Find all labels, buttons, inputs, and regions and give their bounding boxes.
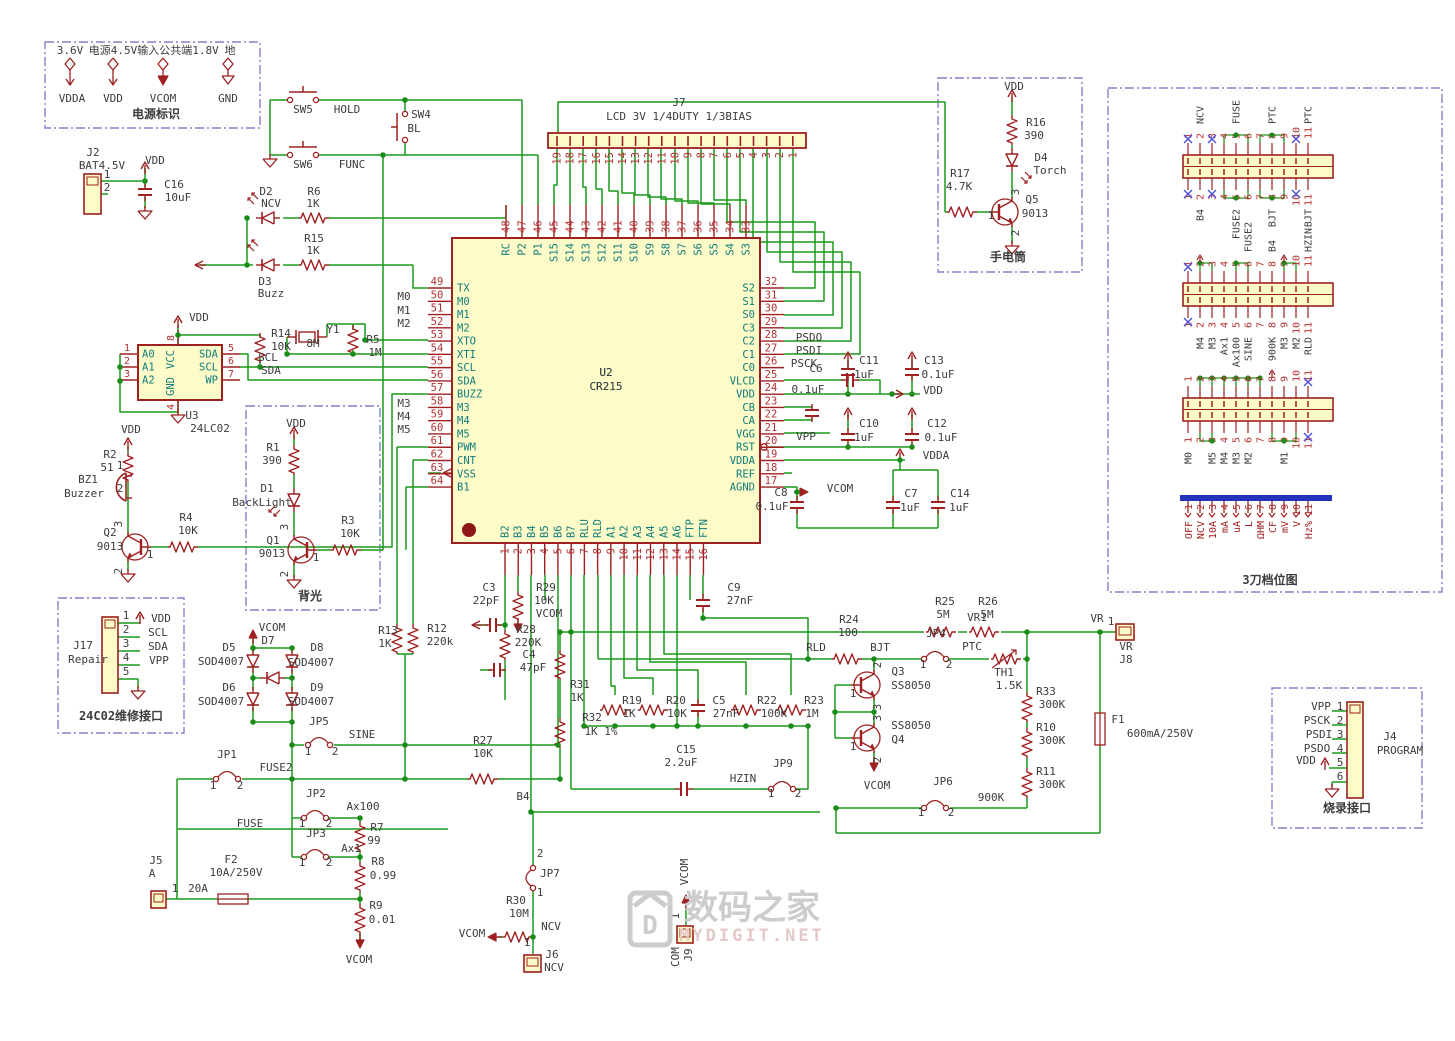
position-number: 2 <box>1196 504 1207 510</box>
circle <box>287 97 292 102</box>
pin-name: VGG <box>736 428 755 440</box>
label-1: 1 <box>123 609 130 622</box>
pin-number: 40 <box>629 220 641 233</box>
gnd-arrow-icon <box>195 261 206 269</box>
pin-number: 3 <box>761 152 773 158</box>
pin-number: 5 <box>1232 437 1243 443</box>
label-0-99: 0.99 <box>370 869 397 882</box>
pin-name: WP <box>205 375 218 387</box>
zigzag <box>355 862 365 892</box>
pin-number: 16 <box>698 548 710 561</box>
connector-icon <box>151 891 166 908</box>
junction-dot <box>1233 195 1238 200</box>
capacitor-icon <box>905 363 919 381</box>
pin-number: 9 <box>1280 194 1291 200</box>
label-2: 2 <box>1337 714 1344 727</box>
rotary-legend: 1OFF2NCV310A4mA5uA6L7ΩHM8CF9mV10V11Hz% <box>1180 495 1332 539</box>
pin-name: A2 <box>619 525 631 538</box>
label-vdd: VDD <box>103 92 123 105</box>
label-2: 2 <box>104 181 111 194</box>
pin-number: 64 <box>431 475 444 487</box>
label-10k: 10K <box>667 707 687 720</box>
junction-dot <box>695 723 701 729</box>
connector-icon <box>524 955 541 972</box>
pin-name: B7 <box>566 525 578 538</box>
pin-name: M4 <box>457 415 470 427</box>
label-c7: C7 <box>904 487 917 500</box>
junction-dot <box>889 391 895 397</box>
pin-number: 1 <box>1184 437 1195 443</box>
bank-label: M3 <box>1208 337 1219 349</box>
pin-number: 10 <box>1292 370 1303 382</box>
label-m1: M1 <box>397 304 410 317</box>
label-r22: R22 <box>757 694 777 707</box>
label-0-01: 0.01 <box>369 913 396 926</box>
label-d7: D7 <box>261 634 274 647</box>
resistor-icon <box>500 630 510 660</box>
label--1-8v: 输入公共端1.8V <box>137 43 219 57</box>
label-d8: D8 <box>310 641 323 654</box>
pin-number: 50 <box>431 289 444 301</box>
position-number: 10 <box>1292 504 1303 516</box>
pin-number: 3 <box>1208 261 1219 267</box>
label-1: 1 <box>850 740 857 753</box>
label-r30: R30 <box>506 894 526 907</box>
junction-dot <box>833 805 839 811</box>
polyline <box>247 655 259 667</box>
diode-icon <box>261 672 285 684</box>
pin-name: M3 <box>457 402 470 414</box>
label-10k: 10K <box>473 747 493 760</box>
label-ax100: Ax100 <box>346 800 379 813</box>
pin-number: 10 <box>619 548 631 561</box>
pin-name: A0 <box>142 349 155 361</box>
line <box>128 536 141 543</box>
pin-number: 46 <box>533 220 545 233</box>
junction-dot <box>244 215 250 221</box>
vcom-arrow-icon <box>249 630 257 644</box>
bank-label: 900K <box>1268 337 1279 361</box>
pin-number: 4 <box>1220 437 1231 443</box>
zig <box>638 705 668 715</box>
wire <box>198 394 428 547</box>
bank-label: B4 <box>1196 209 1207 221</box>
label-r9: R9 <box>369 899 382 912</box>
label-51: 51 <box>100 461 113 474</box>
circle <box>313 152 318 157</box>
pin-number: 48 <box>501 220 513 233</box>
label-vpp: VPP <box>149 654 169 667</box>
polyline <box>222 76 234 84</box>
label-com: COM <box>669 947 682 967</box>
label-3: 3 <box>1009 189 1022 196</box>
label-r7: R7 <box>370 821 383 834</box>
pin-number: 7 <box>1256 194 1267 200</box>
polyline <box>158 76 168 85</box>
watermark-roof <box>634 894 666 906</box>
pin-number: 38 <box>661 220 673 233</box>
label-900k: 900K <box>978 791 1005 804</box>
junction-dot <box>402 776 408 782</box>
label--4-5v: 电源4.5V <box>89 43 138 57</box>
bank-label: M4 <box>1220 452 1231 464</box>
jumper-arc <box>773 782 791 788</box>
zig <box>969 627 999 637</box>
pin-number: 52 <box>431 316 444 328</box>
junction-dot <box>650 723 656 729</box>
label-d9: D9 <box>310 681 323 694</box>
zigzag <box>123 452 133 482</box>
pin-number: 63 <box>431 462 444 474</box>
pin-name: S13 <box>581 243 593 262</box>
pin-number: 7 <box>1256 437 1267 443</box>
pushbutton-icon <box>287 86 318 103</box>
pin-number: 5 <box>228 343 234 354</box>
jumper-arc <box>218 772 236 778</box>
label-1: 1 <box>299 856 306 869</box>
wire <box>624 575 653 695</box>
pin-name: BUZZ <box>457 389 482 401</box>
label-300k: 300K <box>1039 698 1066 711</box>
resistor-icon <box>299 260 329 270</box>
label-0-1uf: 0.1uF <box>921 368 954 381</box>
pin-number: 13 <box>658 548 670 561</box>
gnd-icon <box>138 206 152 219</box>
pin-number: 7 <box>1256 322 1267 328</box>
pin-name: C3 <box>742 322 755 334</box>
position-number: 11 <box>1304 504 1315 516</box>
label-repair: Repair <box>68 653 108 666</box>
junction-dot <box>117 378 123 384</box>
pin-number: 8 <box>592 548 604 554</box>
zig <box>299 213 329 223</box>
switch-bank-2: 123456FUSE278B491011HZIN12M43M34Ax15Ax10… <box>1183 222 1333 367</box>
pin-number: 6 <box>1244 261 1255 267</box>
label-gnd: GND <box>218 92 238 105</box>
label-1: 1 <box>117 459 124 472</box>
resistor-icon <box>513 591 523 621</box>
contact-fork <box>1269 513 1275 517</box>
bank-label: M1 <box>1280 452 1291 464</box>
pin-number: 4 <box>1220 261 1231 267</box>
bank-label: BJT <box>1304 209 1315 227</box>
label-c16: C16 <box>164 178 184 191</box>
pin-number: 41 <box>613 220 625 233</box>
pin-number: 51 <box>431 303 444 315</box>
label-c5: C5 <box>712 694 725 707</box>
capacitor-icon <box>675 782 693 796</box>
label-c3: C3 <box>482 581 495 594</box>
label-2: 2 <box>123 623 130 636</box>
power-flag-icon <box>65 58 75 85</box>
pin-number: 4 <box>1220 133 1231 139</box>
label-vdd: VDD <box>923 384 943 397</box>
label-c15: C15 <box>676 743 696 756</box>
label-d4: D4 <box>1034 151 1048 164</box>
pin-name: C0 <box>742 362 755 374</box>
label-8m: 8M <box>306 337 320 350</box>
pin-number: 16 <box>591 152 603 165</box>
label-vcom: VCOM <box>864 779 891 792</box>
label-9013: 9013 <box>97 540 124 553</box>
label-1k: 1K <box>306 197 320 210</box>
label-5: 5 <box>1337 756 1344 769</box>
pin-number: 11 <box>632 548 644 561</box>
label-2: 2 <box>326 817 333 830</box>
pin-number: 7 <box>1256 261 1267 267</box>
label-1: 1 <box>299 817 306 830</box>
contact-fork <box>1257 513 1263 517</box>
zigzag <box>468 774 498 784</box>
label-ptc: PTC <box>962 640 982 653</box>
label-1uf: 1uF <box>854 368 874 381</box>
bank-label: HZIN <box>1304 228 1315 252</box>
junction-dot <box>871 656 877 662</box>
label-vcom: VCOM <box>827 482 854 495</box>
bank-label: M0 <box>1184 452 1195 464</box>
polyline <box>262 212 274 224</box>
label-47pf: 47pF <box>520 661 547 674</box>
pin-name: C1 <box>742 349 755 361</box>
bank-label: Ax1 <box>1220 337 1231 355</box>
wire <box>637 575 698 703</box>
junction-dot <box>1269 195 1274 200</box>
watermark-en: MYDIGIT.NET <box>679 926 825 946</box>
pin-number: 43 <box>581 220 593 233</box>
label-3: 3 <box>123 637 130 650</box>
bank-label: PTC <box>1268 106 1279 124</box>
position-label: mA <box>1220 521 1231 533</box>
label-390: 390 <box>1024 129 1044 142</box>
label-24c02-: 24C02维修接口 <box>79 708 163 723</box>
label-10a-250v: 10A/250V <box>210 866 263 879</box>
wire <box>413 265 428 288</box>
resistor-icon <box>408 624 418 654</box>
pin-name: B6 <box>552 525 564 538</box>
label-vdda: VDDA <box>59 92 86 105</box>
pin-number: 3 <box>526 548 538 554</box>
pin-name: S4 <box>725 243 737 256</box>
wire <box>703 608 808 659</box>
label-100: 100 <box>838 626 858 639</box>
position-label: CF <box>1268 521 1279 533</box>
pin-number: 32 <box>765 276 778 288</box>
capacitor-icon <box>905 428 919 446</box>
label-10k: 10K <box>178 524 198 537</box>
pin-name: VDD <box>736 389 755 401</box>
label-vcom: VCOM <box>150 92 177 105</box>
junction-dot <box>1209 438 1214 443</box>
pin-name: A6 <box>671 525 683 538</box>
label-jp6: JP6 <box>933 775 953 788</box>
label-2: 2 <box>278 571 291 578</box>
pin-number: 49 <box>431 276 444 288</box>
switch-bank-3: 12345678910111M023M54M45M36M2789M11011 <box>1183 370 1333 464</box>
pin-number: 35 <box>709 220 721 233</box>
polyline <box>356 940 364 948</box>
pin-number: 11 <box>1304 127 1315 139</box>
label-m0: M0 <box>397 290 410 303</box>
junction-dot <box>250 719 256 725</box>
label-1: 1 <box>988 209 995 222</box>
pin-number: 33 <box>741 220 753 233</box>
junction-dot <box>788 723 794 729</box>
label-ax1: Ax1 <box>341 842 361 855</box>
pin-number: 54 <box>431 342 444 354</box>
label-cr215: CR215 <box>589 380 622 393</box>
label-3: 3 <box>871 715 884 722</box>
polyline <box>248 245 254 251</box>
polyline <box>1006 154 1018 166</box>
junction-dot <box>250 645 256 651</box>
label-vdd: VDD <box>1004 80 1024 93</box>
label-backlight: BackLight <box>232 496 292 509</box>
pin-number: 24 <box>765 382 778 394</box>
label-1uf: 1uF <box>900 501 920 514</box>
label-27nf: 27nF <box>713 707 740 720</box>
jumper-icon <box>301 850 328 860</box>
pin-number: 18 <box>565 152 577 165</box>
polyline <box>65 58 75 70</box>
label-ss8050: SS8050 <box>891 719 931 732</box>
pin-number: 6 <box>566 548 578 554</box>
junction-dot <box>805 723 811 729</box>
label-sw6: SW6 <box>293 158 313 171</box>
label-1uf: 1uF <box>949 501 969 514</box>
label-j4: J4 <box>1383 730 1397 743</box>
pin-number: 15 <box>604 152 616 165</box>
pin-name: CA <box>742 415 755 427</box>
label--: 地 <box>225 44 236 57</box>
wire <box>784 418 812 420</box>
label-1m: 1M <box>368 346 382 359</box>
label-scl: SCL <box>258 351 278 364</box>
label-psdi: PSDI <box>1306 728 1333 741</box>
zigzag <box>1022 728 1032 758</box>
polyline <box>267 672 279 684</box>
position-label: mV <box>1280 521 1291 533</box>
zigzag <box>500 630 510 660</box>
junction-dot <box>502 622 508 628</box>
label-d5: D5 <box>222 641 235 654</box>
label-ncv: NCV <box>261 197 281 210</box>
pin-name: S8 <box>661 243 673 256</box>
u3-chip: 1A02A13A25SDA6SCL7WP8VCC4GND <box>120 330 240 413</box>
pin-number: 10 <box>1292 255 1303 267</box>
pin-name: RLU <box>579 519 591 538</box>
label-1: 1 <box>1337 700 1344 713</box>
polyline <box>252 193 258 199</box>
zigzag <box>1022 692 1032 722</box>
label-r27: R27 <box>473 734 493 747</box>
pin-number: 11 <box>1304 322 1315 334</box>
label-220k: 220k <box>427 635 454 648</box>
pin-number: 2 <box>1196 376 1207 382</box>
gnd-icon <box>1325 784 1339 797</box>
label-ss8050: SS8050 <box>891 679 931 692</box>
pin-name: PWM <box>457 442 476 454</box>
emitter-arrow <box>1008 218 1012 223</box>
junction-dot <box>1024 629 1030 635</box>
gnd-icon <box>263 154 277 167</box>
label-c4: C4 <box>522 648 536 661</box>
label-rld: RLD <box>806 641 826 654</box>
resistor-icon <box>832 654 862 664</box>
contact-fork <box>1197 513 1203 517</box>
position-label: 10A <box>1208 521 1219 539</box>
pin-number: 5 <box>552 548 564 554</box>
pin-name: S7 <box>677 243 689 256</box>
pin-number: 11 <box>1304 194 1315 206</box>
junction-dot <box>700 615 706 621</box>
label-func: FUNC <box>339 158 366 171</box>
junction-dot <box>909 391 915 397</box>
label-hzin: HZIN <box>730 772 757 785</box>
wire <box>784 407 812 408</box>
junction-dot <box>557 629 563 635</box>
label-r17: R17 <box>950 167 970 180</box>
pin-name: M1 <box>457 309 470 321</box>
pin-number: 9 <box>1280 133 1291 139</box>
pin-number: 22 <box>765 409 778 421</box>
label-j8: J8 <box>1119 653 1132 666</box>
bank-label: M2 <box>1244 452 1255 464</box>
label-u2: U2 <box>599 366 612 379</box>
pin-name: B5 <box>539 525 551 538</box>
pin-number: 4 <box>539 548 551 554</box>
gnd-icon <box>131 686 145 699</box>
junction-dot <box>250 675 256 681</box>
pin-number: 4 <box>166 404 177 410</box>
jumper-arc <box>306 811 324 817</box>
junction-dot <box>897 457 903 463</box>
label-m2: M2 <box>397 317 410 330</box>
junction-dot <box>357 815 363 821</box>
resistor-icon <box>355 862 365 892</box>
label-jp4: JP4 <box>926 627 946 640</box>
label-2: 2 <box>871 757 884 764</box>
label-1: 1 <box>210 779 217 792</box>
diode-icon <box>256 212 280 224</box>
connector-body <box>1347 702 1363 798</box>
label-r10: R10 <box>1036 721 1056 734</box>
pin-number: 23 <box>765 395 778 407</box>
label-sine: SINE <box>349 728 376 741</box>
pin-number: 4 <box>1220 194 1231 200</box>
resistor-icon <box>1007 115 1017 145</box>
capacitor-icon <box>488 663 506 677</box>
pin-name: VCC <box>165 350 177 369</box>
label-9013: 9013 <box>1022 207 1049 220</box>
pin-number: 5 <box>1232 376 1243 382</box>
pin-name: SCL <box>457 362 476 374</box>
bank-label: FUSE <box>1232 100 1243 124</box>
label-r19: R19 <box>622 694 642 707</box>
bank-label: BJT <box>1268 209 1279 227</box>
label-27nf: 27nF <box>727 594 754 607</box>
pin-name: S0 <box>742 309 755 321</box>
junction-dot <box>555 742 561 748</box>
label-sw4: SW4 <box>411 108 431 121</box>
label-r3: R3 <box>341 514 354 527</box>
zig <box>468 774 498 784</box>
label-bz1: BZ1 <box>78 473 98 486</box>
label-r25: R25 <box>935 595 955 608</box>
polyline <box>248 198 254 204</box>
junction-dot <box>909 444 915 450</box>
bank-label: M5 <box>1208 452 1219 464</box>
label-f2: F2 <box>224 853 237 866</box>
